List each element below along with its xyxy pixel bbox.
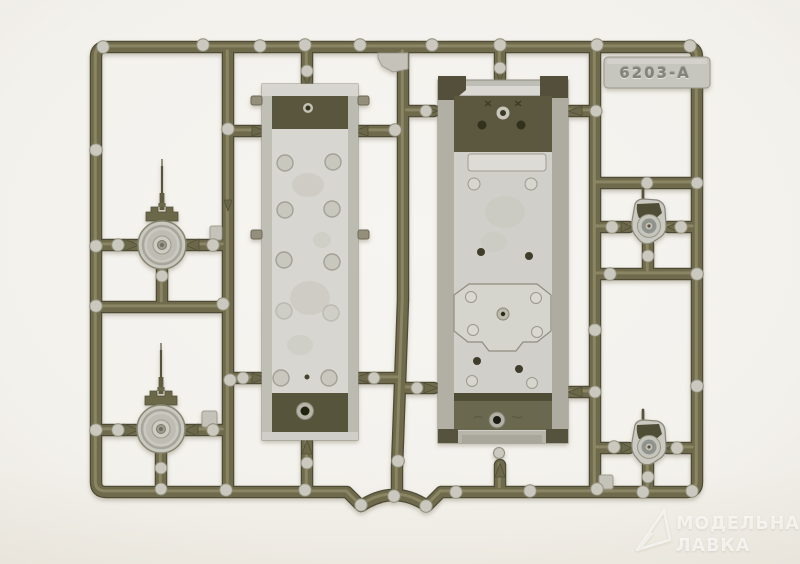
sprue-photo: 6203-A <box>0 0 800 564</box>
watermark-line1: МОДЕЛЬНАЯ <box>676 514 800 534</box>
hull-tub-part <box>251 84 369 440</box>
watermark-line2: ЛАВКА <box>676 536 750 556</box>
hull-plate-part <box>438 76 568 443</box>
sprue-photo-canvas: 6203-A <box>0 0 800 564</box>
tag-label: 6203-A <box>619 64 691 82</box>
part-number-tag: 6203-A <box>604 57 710 88</box>
